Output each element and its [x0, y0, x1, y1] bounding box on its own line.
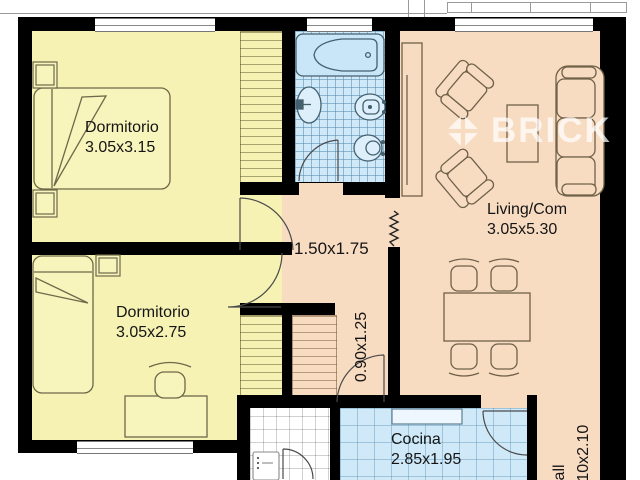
label-passage: 0.90x1.25 — [352, 297, 372, 397]
label-bedroom-2: Dormitorio 3.05x2.75 — [116, 303, 190, 343]
wall-laundry-left — [237, 395, 250, 480]
wall-bath-living — [385, 31, 400, 198]
label-kitchen: Cocina 2.85x1.95 — [391, 430, 461, 470]
wall-passage-dining — [388, 247, 400, 403]
brick-diamond-icon — [444, 112, 482, 150]
room-dims: 2.85x1.95 — [391, 450, 461, 470]
closet-bedroom-1 — [240, 31, 284, 184]
room-name: Cocina — [391, 430, 461, 450]
room-name: Living/Com — [487, 200, 567, 220]
room-dims: 3.05x2.75 — [116, 323, 190, 343]
closet-hall — [292, 315, 337, 397]
wall-closet-top — [240, 303, 335, 315]
room-laundry — [250, 403, 330, 480]
terrace-lines — [0, 0, 627, 17]
room-name: Dormitorio — [85, 118, 159, 138]
doorway-bathroom — [299, 183, 343, 195]
watermark-text: BRICK — [491, 111, 612, 151]
room-bathroom — [295, 31, 385, 182]
label-hall-south-name: Hall — [550, 452, 570, 480]
wall-laundry-kitchen — [330, 408, 340, 480]
wall-left — [18, 17, 32, 453]
wall-kitchen-right — [527, 395, 537, 480]
room-dims: 3.05x5.30 — [487, 220, 567, 240]
window-living-balcony — [455, 18, 593, 32]
label-hall-south-dims: 1.10x2.10 — [574, 405, 594, 480]
wall-bedroom-divider — [32, 242, 292, 255]
window-bedroom-1 — [95, 18, 215, 32]
window-bedroom-2 — [77, 441, 193, 454]
label-living: Living/Com 3.05x5.30 — [487, 200, 567, 240]
label-bedroom-1: Dormitorio 3.05x3.15 — [85, 118, 159, 158]
closet-bedroom-2 — [240, 315, 284, 397]
window-bathroom — [307, 18, 372, 32]
room-dims: 3.05x3.15 — [85, 138, 159, 158]
label-hall-center: 1.50x1.75 — [294, 238, 369, 259]
wall-right — [600, 17, 626, 480]
room-name: Dormitorio — [116, 303, 190, 323]
watermark-logo: BRICK — [444, 111, 612, 151]
floor-plan: BRICK Dormitorio 3.05x3.15 Dormitorio 3.… — [0, 0, 640, 480]
wall-bedroom1-bath — [282, 31, 295, 182]
wall-closet-mid — [282, 315, 292, 395]
